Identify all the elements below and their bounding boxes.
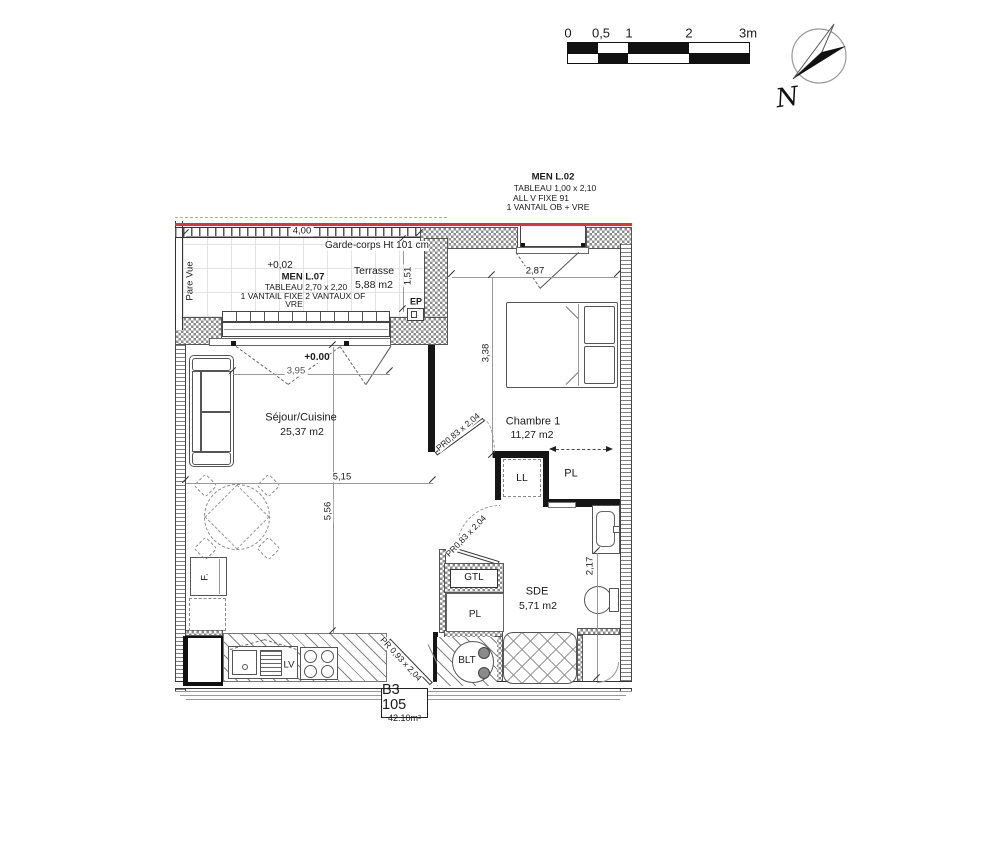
wall-black (543, 453, 549, 505)
bath-area: 5,71 m2 (519, 601, 557, 612)
bath-name: SDE (526, 587, 549, 598)
shower (503, 632, 577, 684)
wall-black (495, 451, 501, 500)
lv-label: LV (284, 660, 295, 670)
dim-line (186, 483, 433, 484)
window-l07-rail (222, 311, 390, 322)
l07-title: MEN L.07 (282, 272, 325, 282)
ep-box-inner (411, 311, 417, 318)
terrace-area: 5,88 m2 (355, 280, 393, 291)
sink-drain-icon (242, 664, 248, 670)
scale-seg (568, 43, 598, 53)
unit-tag: B3 105 42.10m² (381, 688, 428, 718)
burner-icon (321, 665, 334, 678)
dim-line (597, 553, 598, 681)
sofa-armrest (192, 452, 231, 465)
wall-segment (390, 317, 448, 345)
hinge-dot (344, 341, 349, 346)
sofa-back (192, 371, 201, 452)
floor-plan: B3 105 42.10m² 4,00 Garde-corps Ht 101 c… (0, 0, 1000, 857)
door-swing (236, 346, 288, 384)
fridge-line (219, 559, 220, 594)
scale-2: 2 (685, 27, 692, 40)
sink-bowl (232, 650, 257, 675)
hinge-dot (581, 243, 585, 247)
scale-seg (689, 54, 749, 64)
toilet-tank (609, 588, 619, 612)
wall-segment (577, 628, 620, 635)
north-letter: N (773, 81, 802, 109)
pl2-label: PL (469, 610, 481, 620)
boundary-dashed (175, 217, 447, 218)
pl-label: PL (564, 469, 577, 480)
shower-corner-curve (597, 662, 619, 683)
scale-row (568, 53, 749, 64)
scale-1: 1 (625, 27, 632, 40)
arrow-left-icon (549, 446, 556, 452)
scale-seg (628, 43, 689, 53)
corner-block (183, 636, 223, 686)
wall-black (493, 451, 549, 458)
scale-seg (598, 43, 628, 53)
drainer (260, 650, 282, 676)
l02-line1: TABLEAU 1,00 x 2,10 (514, 184, 597, 193)
blt-dot (478, 667, 490, 679)
washbasin-tap-icon (613, 526, 620, 533)
dim-4-00: 4,00 (291, 226, 314, 236)
bedroom-name: Chambre 1 (506, 417, 560, 428)
scale-row (568, 43, 749, 53)
toilet-bowl (584, 586, 612, 614)
sofa-cushion (201, 371, 231, 412)
l07-line2: 1 VANTAIL FIXE 2 VANTAUX OF (241, 292, 366, 301)
unit-area: 42.10m² (388, 714, 421, 723)
ll-label: LL (516, 473, 528, 484)
unit-id: B3 105 (382, 683, 427, 713)
reserved-space (189, 598, 226, 631)
bed-line (578, 304, 579, 386)
north-compass-icon: N (772, 14, 864, 109)
burner-icon (304, 650, 317, 663)
pare-vue-label: Pare Vue (185, 261, 195, 300)
dim-line (492, 277, 493, 458)
pl-slide-line (556, 449, 606, 450)
scale-05: 0,5 (592, 27, 610, 40)
bedroom-door-arc (483, 419, 495, 453)
dim-line (452, 277, 618, 278)
blt-dot (478, 647, 490, 659)
scale-seg (598, 54, 628, 64)
door-swing (366, 346, 392, 385)
window-l07-sill (209, 338, 391, 346)
fridge-label: F. (200, 573, 210, 580)
window-l07-glassline (224, 329, 388, 330)
wall-black (428, 345, 435, 452)
dim-3-95: 3,95 (285, 366, 308, 376)
dim-line (233, 374, 390, 375)
wall-segment (577, 635, 583, 687)
dim-line (333, 347, 334, 634)
pillow (584, 346, 615, 384)
l07-line3: VRE (285, 300, 302, 309)
hinge-dot (521, 243, 525, 247)
living-name: Séjour/Cuisine (265, 413, 337, 424)
bedroom-area: 11,27 m2 (511, 430, 554, 441)
dim-2-87: 2,87 (524, 266, 547, 276)
ep-label: EP (410, 298, 422, 307)
arrow-right-icon (606, 446, 613, 452)
living-level: +0.00 (304, 353, 329, 363)
terrace-name: Terrasse (354, 266, 394, 277)
door-swing (340, 346, 367, 385)
shelf (548, 502, 576, 508)
sofa-armrest (192, 358, 231, 371)
garde-corps-note: Garde-corps Ht 101 cm (325, 241, 429, 251)
dim-5-56: 5,56 (323, 500, 333, 523)
dim-2-17: 2,17 (585, 555, 595, 578)
right-wall (620, 244, 632, 692)
pillow (584, 306, 615, 344)
dim-5-15: 5,15 (331, 472, 354, 482)
window-l02 (520, 225, 586, 247)
burner-icon (304, 665, 317, 678)
bedroom-door-label: PR0,83 x 2,04 (435, 411, 482, 452)
dim-1-51: 1,51 (403, 265, 413, 288)
scale-seg (628, 54, 689, 64)
living-area: 25,37 m2 (280, 427, 324, 438)
blt-label: BLT (458, 656, 476, 666)
gtl-label: GTL (464, 573, 483, 583)
scale-seg (568, 54, 598, 64)
l02-title: MEN L.02 (532, 172, 575, 182)
dim-3-38: 3,38 (481, 342, 491, 365)
scale-0: 0 (564, 27, 571, 40)
sofa-cushion (201, 412, 231, 452)
l02-line3: 1 VANTAIL OB + VRE (507, 203, 590, 212)
scale-3m: 3m (739, 27, 757, 40)
scale-bar (567, 42, 750, 64)
burner-icon (321, 650, 334, 663)
red-boundary-line (175, 223, 632, 226)
l07-level: +0,02 (267, 261, 292, 271)
scale-seg (689, 43, 749, 53)
